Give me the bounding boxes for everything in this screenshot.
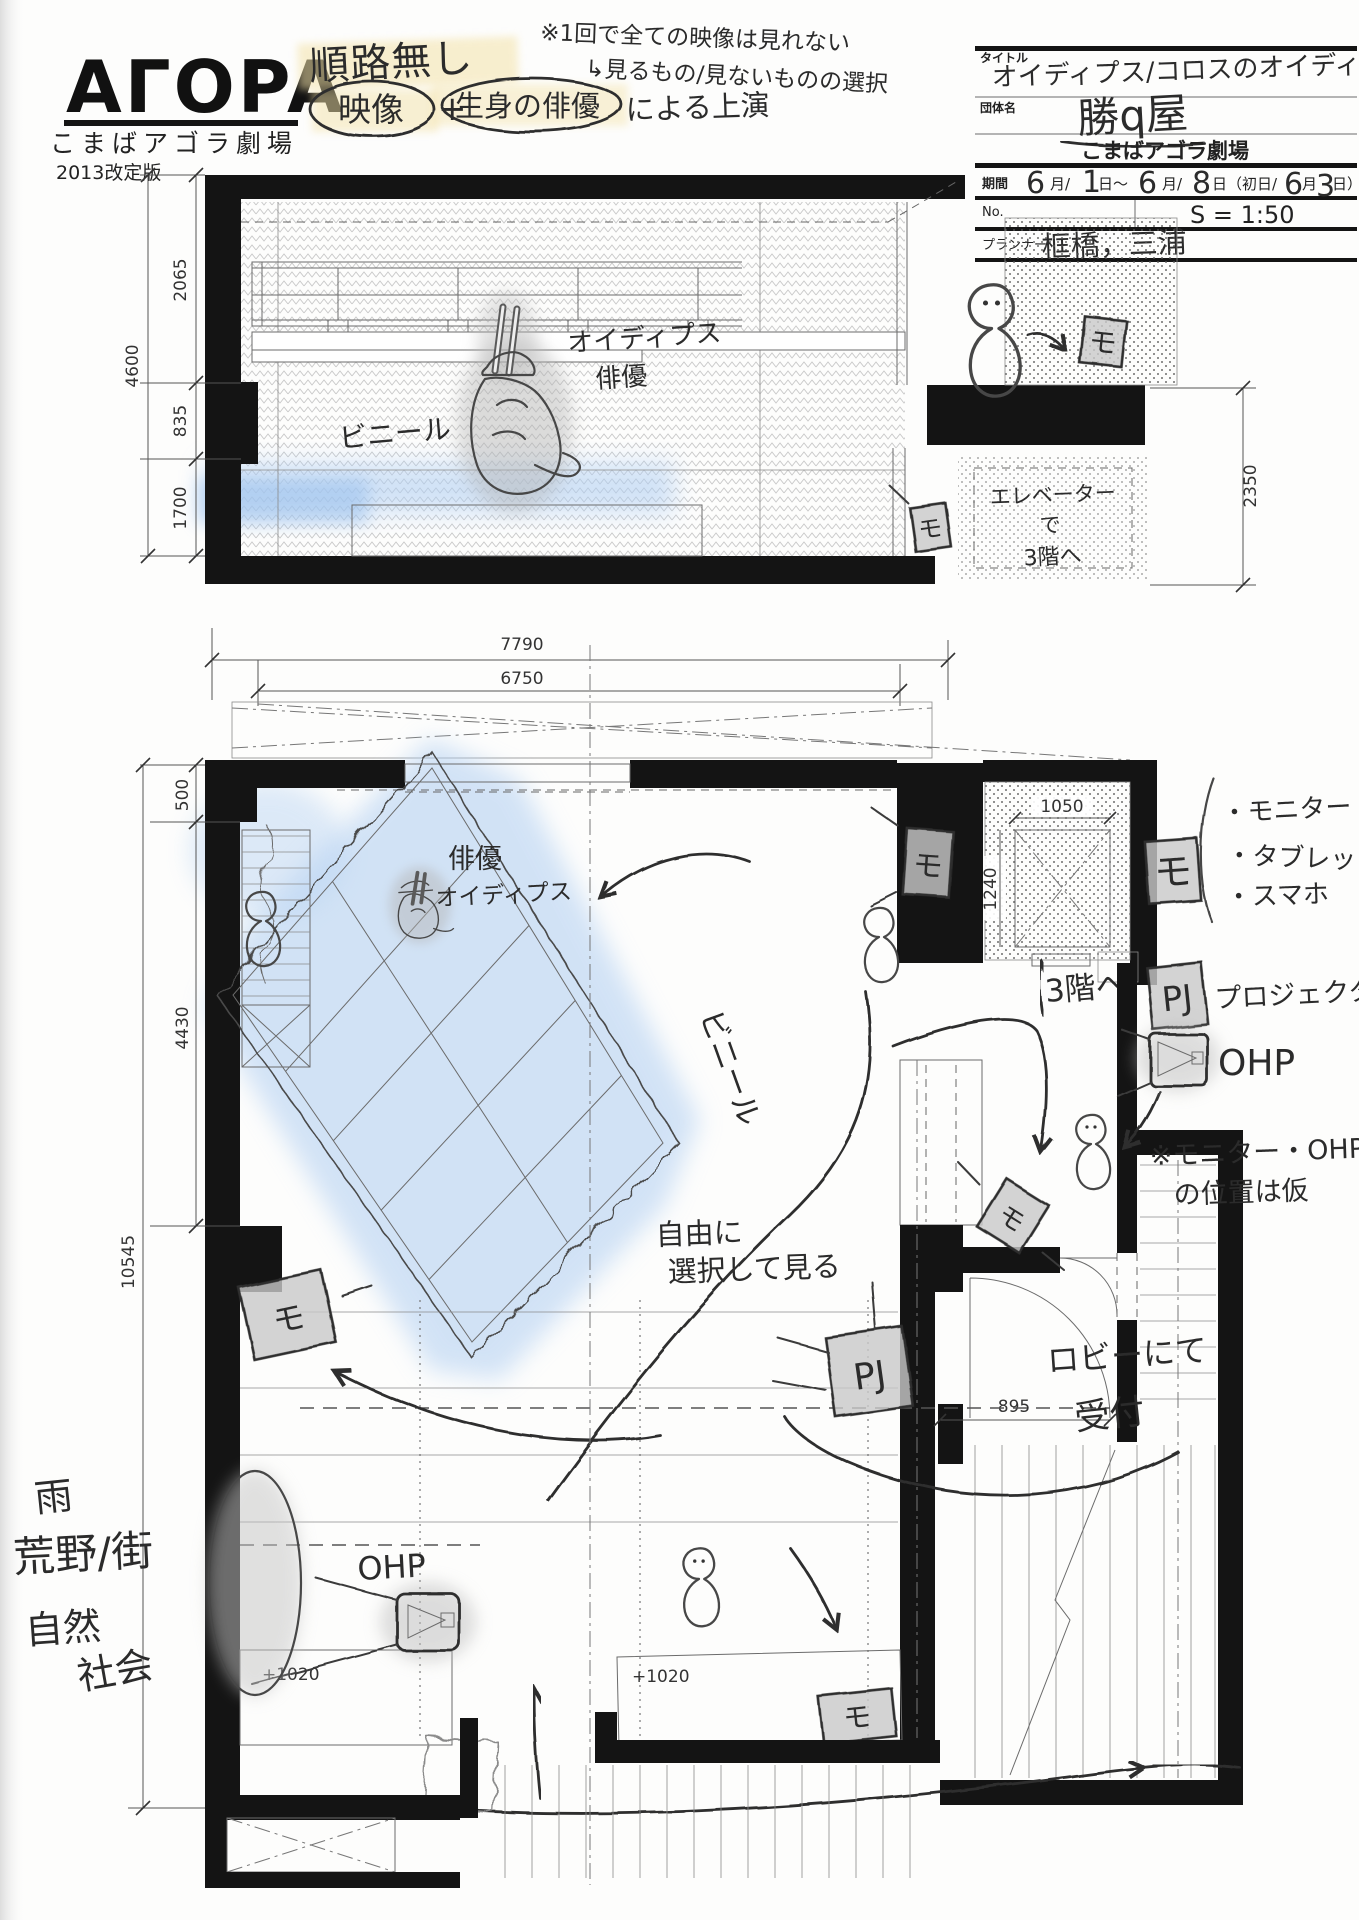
note-by-performance: による上演 [625,88,770,127]
seating-area: +1020 +1020 [240,1300,1110,1747]
dim-10545: 10545 [119,1235,139,1289]
period-unit2: 日～ [1098,175,1128,193]
elevator-note-3: 3階へ [1023,544,1082,572]
legend-item-monitor: ・モニター [1221,792,1352,829]
section-left-wall [205,175,241,584]
projector-symbol: PJ [851,1354,889,1399]
period-unit4: 日（初日/ [1212,175,1278,193]
no-label: No. [982,205,1004,220]
column-wash [207,1469,303,1697]
section-floor-slab [205,556,935,584]
legend: モ ・モニター ・タブレット ・スマホ PJ プロジェクター OHP ※モニター… [1118,778,1359,1211]
flow-arrow-elevator [893,1019,1046,1150]
logo-subtitle: こまばアゴラ劇場 [50,129,298,158]
margin-note-0: 雨 [32,1473,74,1521]
monitor-symbol: モ [916,513,944,544]
period-first-month: 6 [1284,167,1303,202]
legend-note-1: ※モニター・OHP [1149,1133,1359,1172]
note-live-actor: 生身の俳優 [455,89,600,123]
note-no-route: 順路無し [308,35,474,90]
period-month2: 6 [1138,166,1157,201]
plan-to3f-label: 3階へ [1044,967,1129,1010]
period-month1: 6 [1026,166,1045,201]
dim-2065: 2065 [171,258,191,301]
flow-arrow-into-vinyl [602,854,750,896]
note-video: 映像 [338,90,404,129]
legend-projector-label: プロジェクター [1214,974,1359,1015]
monitor-symbol: モ [1153,849,1194,896]
margin-note-2: 自然 [24,1604,103,1653]
top-notes: 順路無し 映像 + 生身の俳優 による上演 ※1回で全ての映像は見れない ↳見る… [297,20,888,136]
dim-7790: 7790 [500,635,543,655]
plan-monitor-box-lobby: モ [977,1179,1049,1253]
period-unit3: 月/ [1162,175,1183,193]
drawing-canvas: AΓOPA こまばアゴラ劇場 2013改定版 順路無し 映像 + 生身の俳優 に… [0,0,1359,1920]
legend-projector-box: PJ [1147,962,1208,1029]
period-label: 期間 [982,177,1008,192]
stairs-bottom [505,1765,910,1878]
legend-item-tablet: ・タブレット [1226,841,1359,876]
flow-arrow-platform-monitor [790,1548,836,1628]
legend-monitor-box: モ [1145,838,1201,903]
scale-value: S = 1:50 [1190,201,1295,229]
period-unit1: 月/ [1050,175,1071,193]
plan-monitor-box-wall: モ [903,828,953,897]
legend-bracket [1201,778,1213,922]
plan-ghost-3 [683,1548,719,1626]
flow-arrow-left-monitor [336,1372,660,1440]
dim-4600: 4600 [123,344,143,387]
monitor-symbol: モ [1087,325,1118,361]
section-actor-label-2: 俳優 [594,361,648,395]
floor-plan: 俳優 オイディプス ビニール 1050 1240 モ 3階へ [119,645,1243,1888]
free-choice-2: 選択して見る [667,1249,841,1289]
org-value: 勝q屋 [1076,88,1189,143]
margin-note-3: 社会 [74,1642,157,1699]
legend-note-2: の位置は仮 [1173,1175,1309,1211]
elevator-note-1: エレベーター [989,481,1116,509]
plan-monitor-box-leftwall: モ [239,1270,337,1360]
margin-notes: 雨 荒野/街 自然 社会 [12,1473,156,1699]
legend-item-phone: ・スマホ [1225,879,1329,913]
plan-projector-box: PJ [825,1327,913,1417]
projector-symbol: PJ [1160,977,1195,1020]
period-unit5: 月 [1302,175,1317,193]
plan-ghost-4 [1076,1115,1110,1189]
dim-1240: 1240 [981,867,1001,910]
theater-plan-sheet: AΓOPA こまばアゴラ劇場 2013改定版 順路無し 映像 + 生身の俳優 に… [0,0,1359,1920]
flow-arrow-entrance [534,1690,540,1798]
margin-note-1: 荒野/街 [12,1526,155,1582]
legend-ohp-label: OHP [1218,1043,1295,1084]
org-label: 団体名 [980,100,1016,115]
note-caution-1: ※1回で全ての映像は見れない [540,20,851,57]
monitor-symbol: モ [842,1700,873,1736]
title-value: オイディプス/コロスのオイディプス [991,48,1359,93]
plan-elevator: 1050 1240 [981,782,1138,982]
section-drawing: モ エレベーター で 3階へ モ オイディプス 俳優 ビニール [123,168,1261,592]
logo-underline [64,120,298,126]
dim-895: 895 [998,1397,1030,1417]
section-top-wall [205,175,965,199]
section-monitor-box: モ [1080,316,1127,367]
dim-2350: 2350 [1241,464,1261,507]
plan-vinyl-label: ビニール [692,1006,766,1131]
dim-1050: 1050 [1040,797,1083,817]
dim-platform-b: +1020 [632,1667,690,1687]
dim-6750: 6750 [500,669,543,689]
monitor-symbol: モ [912,848,944,885]
plan-ohp-label: OHP [356,1546,426,1588]
flow-arrow-up-3f [1040,964,1043,1015]
section-monitor-box-2: モ [909,503,951,552]
venue-name: こまばアゴラ劇場 [1081,139,1249,163]
section-beam [927,385,1145,445]
plan-actor-label-1: 俳優 [448,844,502,875]
plan-top-wall [257,760,405,788]
ceiling-brace-lines [232,702,1130,760]
dim-835: 835 [171,405,191,437]
logo-edition: 2013改定版 [56,162,161,184]
dim-4430: 4430 [173,1006,193,1049]
period-unit6: 日） [1332,175,1359,193]
plan-ghost-2 [864,908,898,982]
plan-monitor-box-platform: モ [818,1688,897,1743]
free-choice-1: 自由に [655,1215,743,1252]
scan-edge-shadow [0,0,26,1920]
dim-1700: 1700 [171,486,191,529]
elevator-note-2: で [1040,513,1061,537]
period-day2: 8 [1192,166,1211,201]
width-dimensions: 7790 6750 [205,628,955,706]
reception-note-2: 受付 [1073,1392,1147,1439]
dim-500: 500 [173,779,193,811]
